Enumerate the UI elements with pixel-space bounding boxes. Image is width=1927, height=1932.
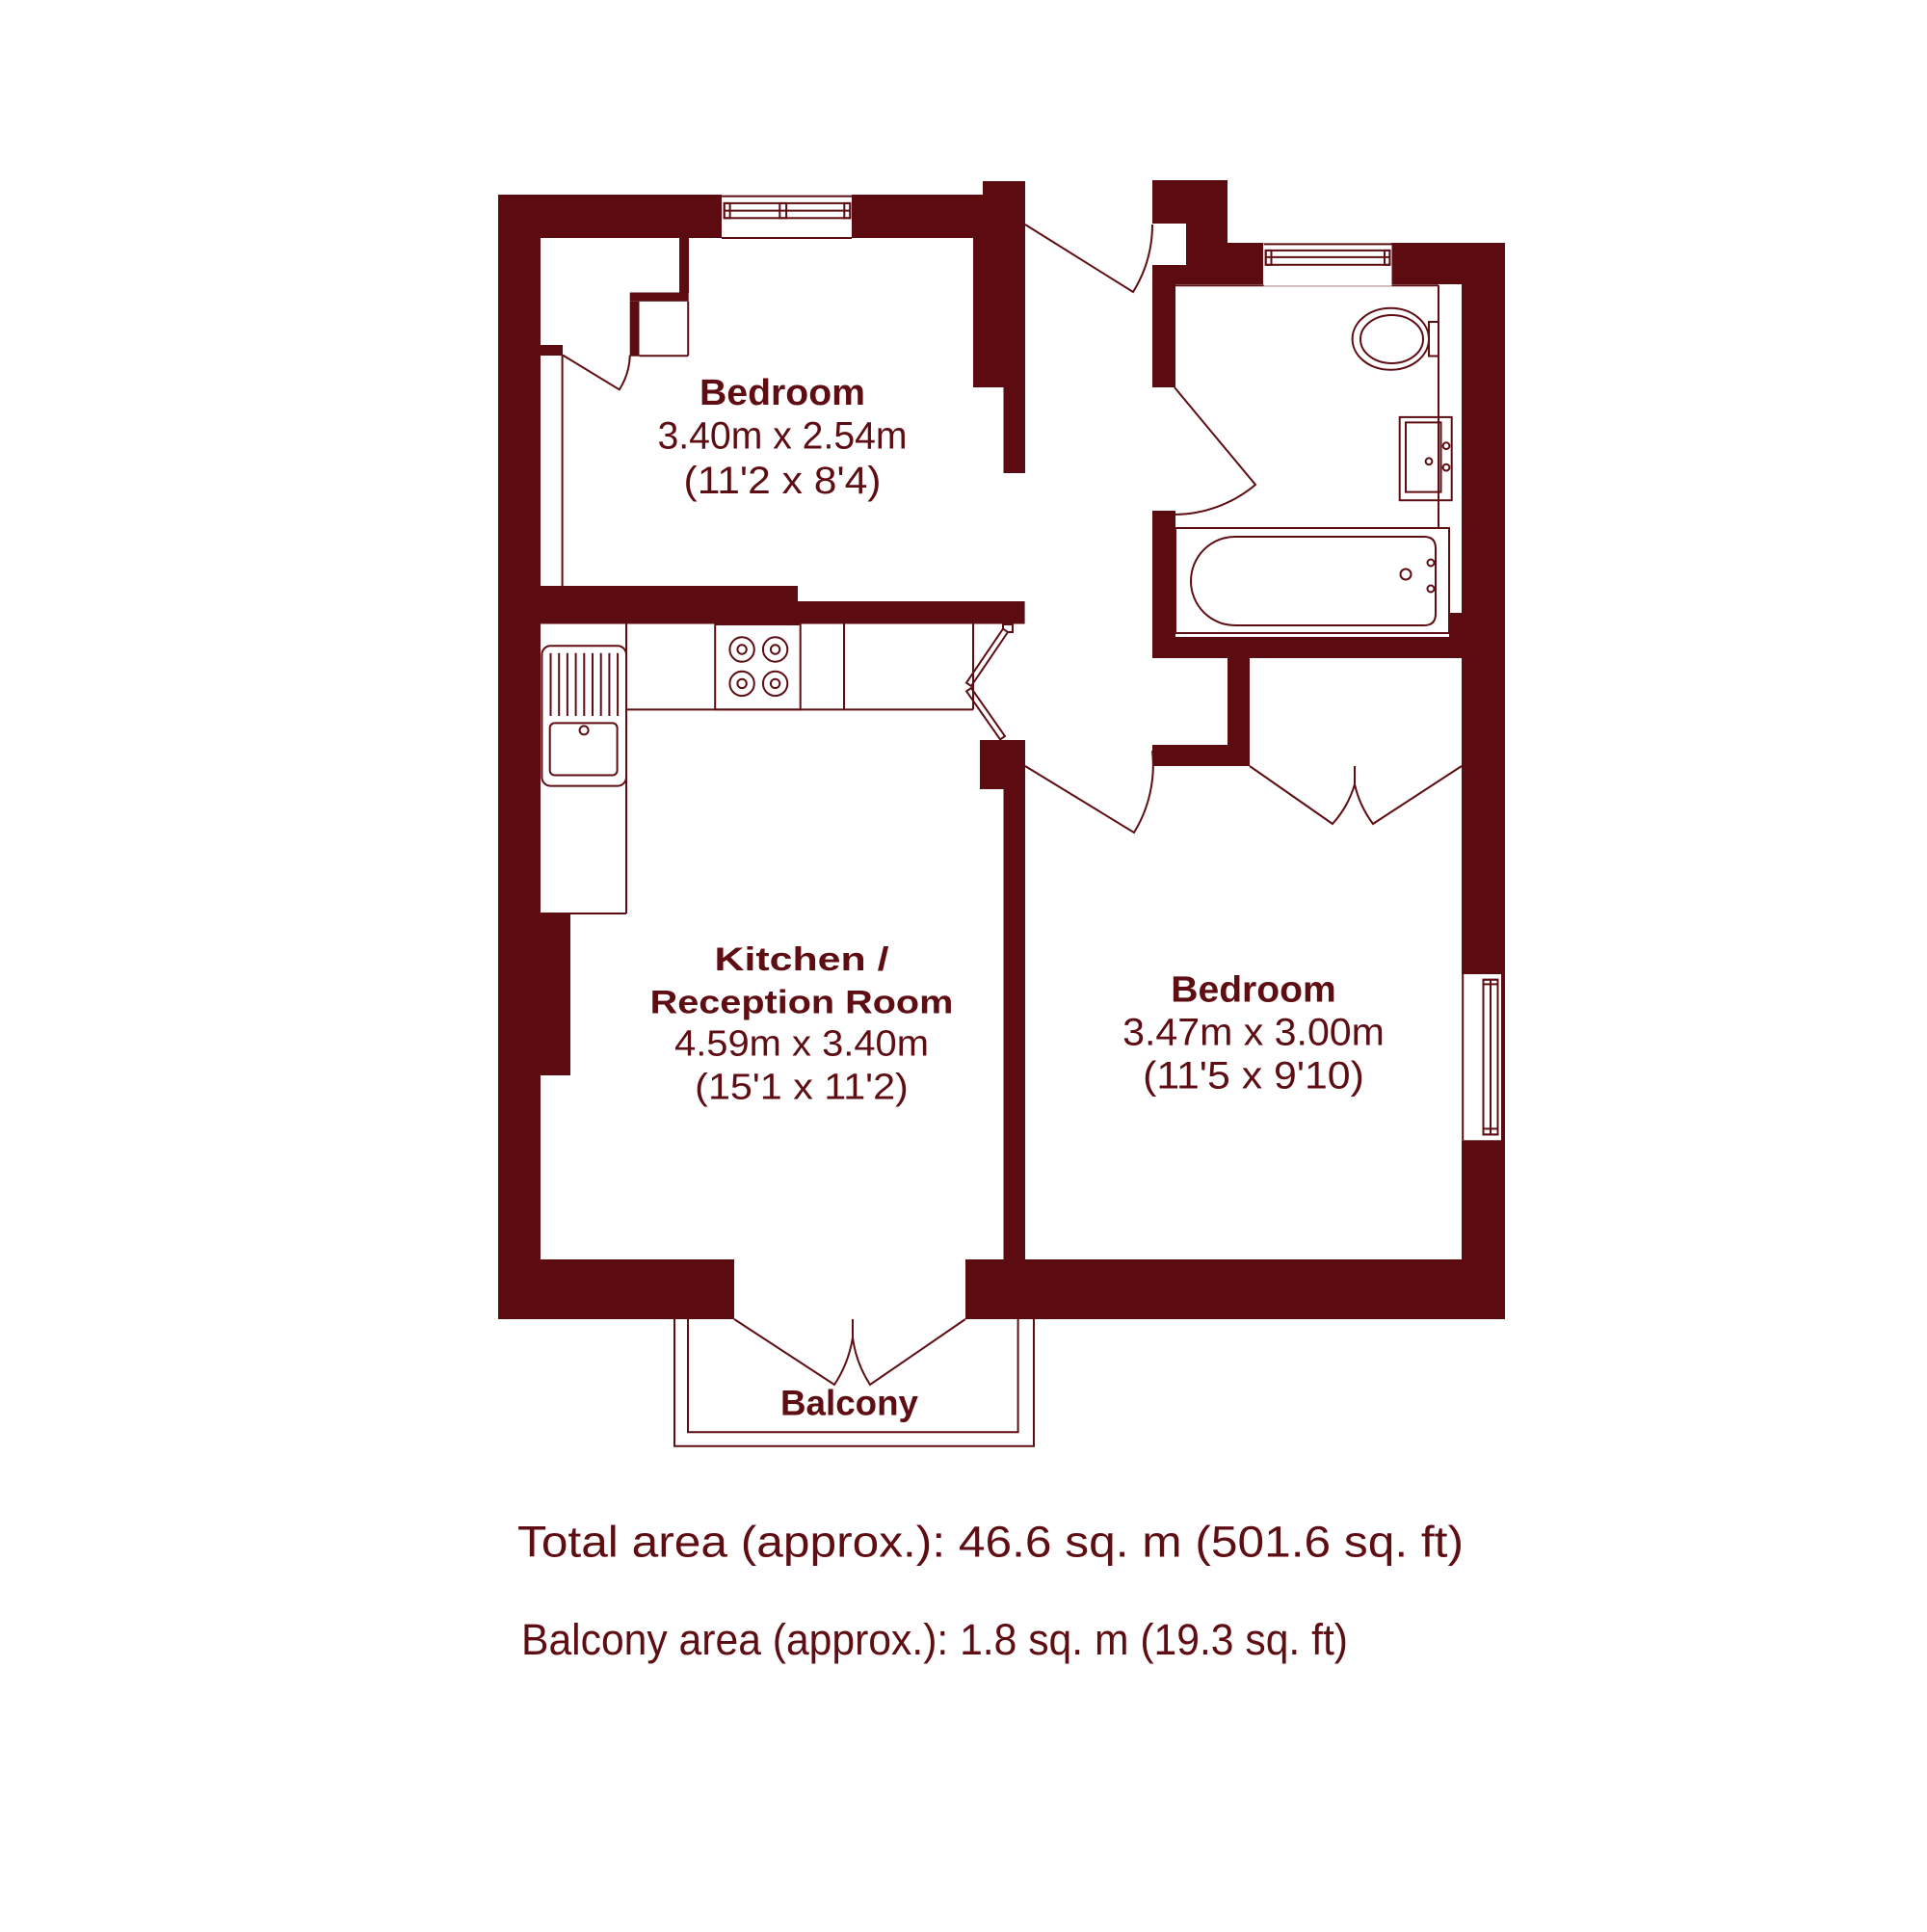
svg-text:3.40m x 2.54m: 3.40m x 2.54m bbox=[658, 415, 908, 458]
svg-text:Balcony: Balcony bbox=[780, 1383, 918, 1423]
svg-text:(11'2 x 8'4): (11'2 x 8'4) bbox=[684, 460, 882, 502]
svg-text:(15'1 x 11'2): (15'1 x 11'2) bbox=[695, 1067, 909, 1107]
svg-text:Bedroom: Bedroom bbox=[1171, 970, 1336, 1011]
svg-text:Bedroom: Bedroom bbox=[700, 373, 865, 413]
svg-text:3.47m x 3.00m: 3.47m x 3.00m bbox=[1122, 1012, 1385, 1054]
svg-text:(11'5 x 9'10): (11'5 x 9'10) bbox=[1143, 1055, 1364, 1098]
svg-text:Balcony area (approx.): 1.8 sq: Balcony area (approx.): 1.8 sq. m (19.3 … bbox=[521, 1615, 1348, 1664]
svg-text:Reception Room: Reception Room bbox=[650, 984, 954, 1020]
svg-text:Kitchen /: Kitchen / bbox=[715, 941, 890, 978]
svg-text:Total area (approx.): 46.6 sq.: Total area (approx.): 46.6 sq. m (501.6 … bbox=[517, 1518, 1464, 1567]
svg-text:4.59m x 3.40m: 4.59m x 3.40m bbox=[674, 1023, 929, 1064]
